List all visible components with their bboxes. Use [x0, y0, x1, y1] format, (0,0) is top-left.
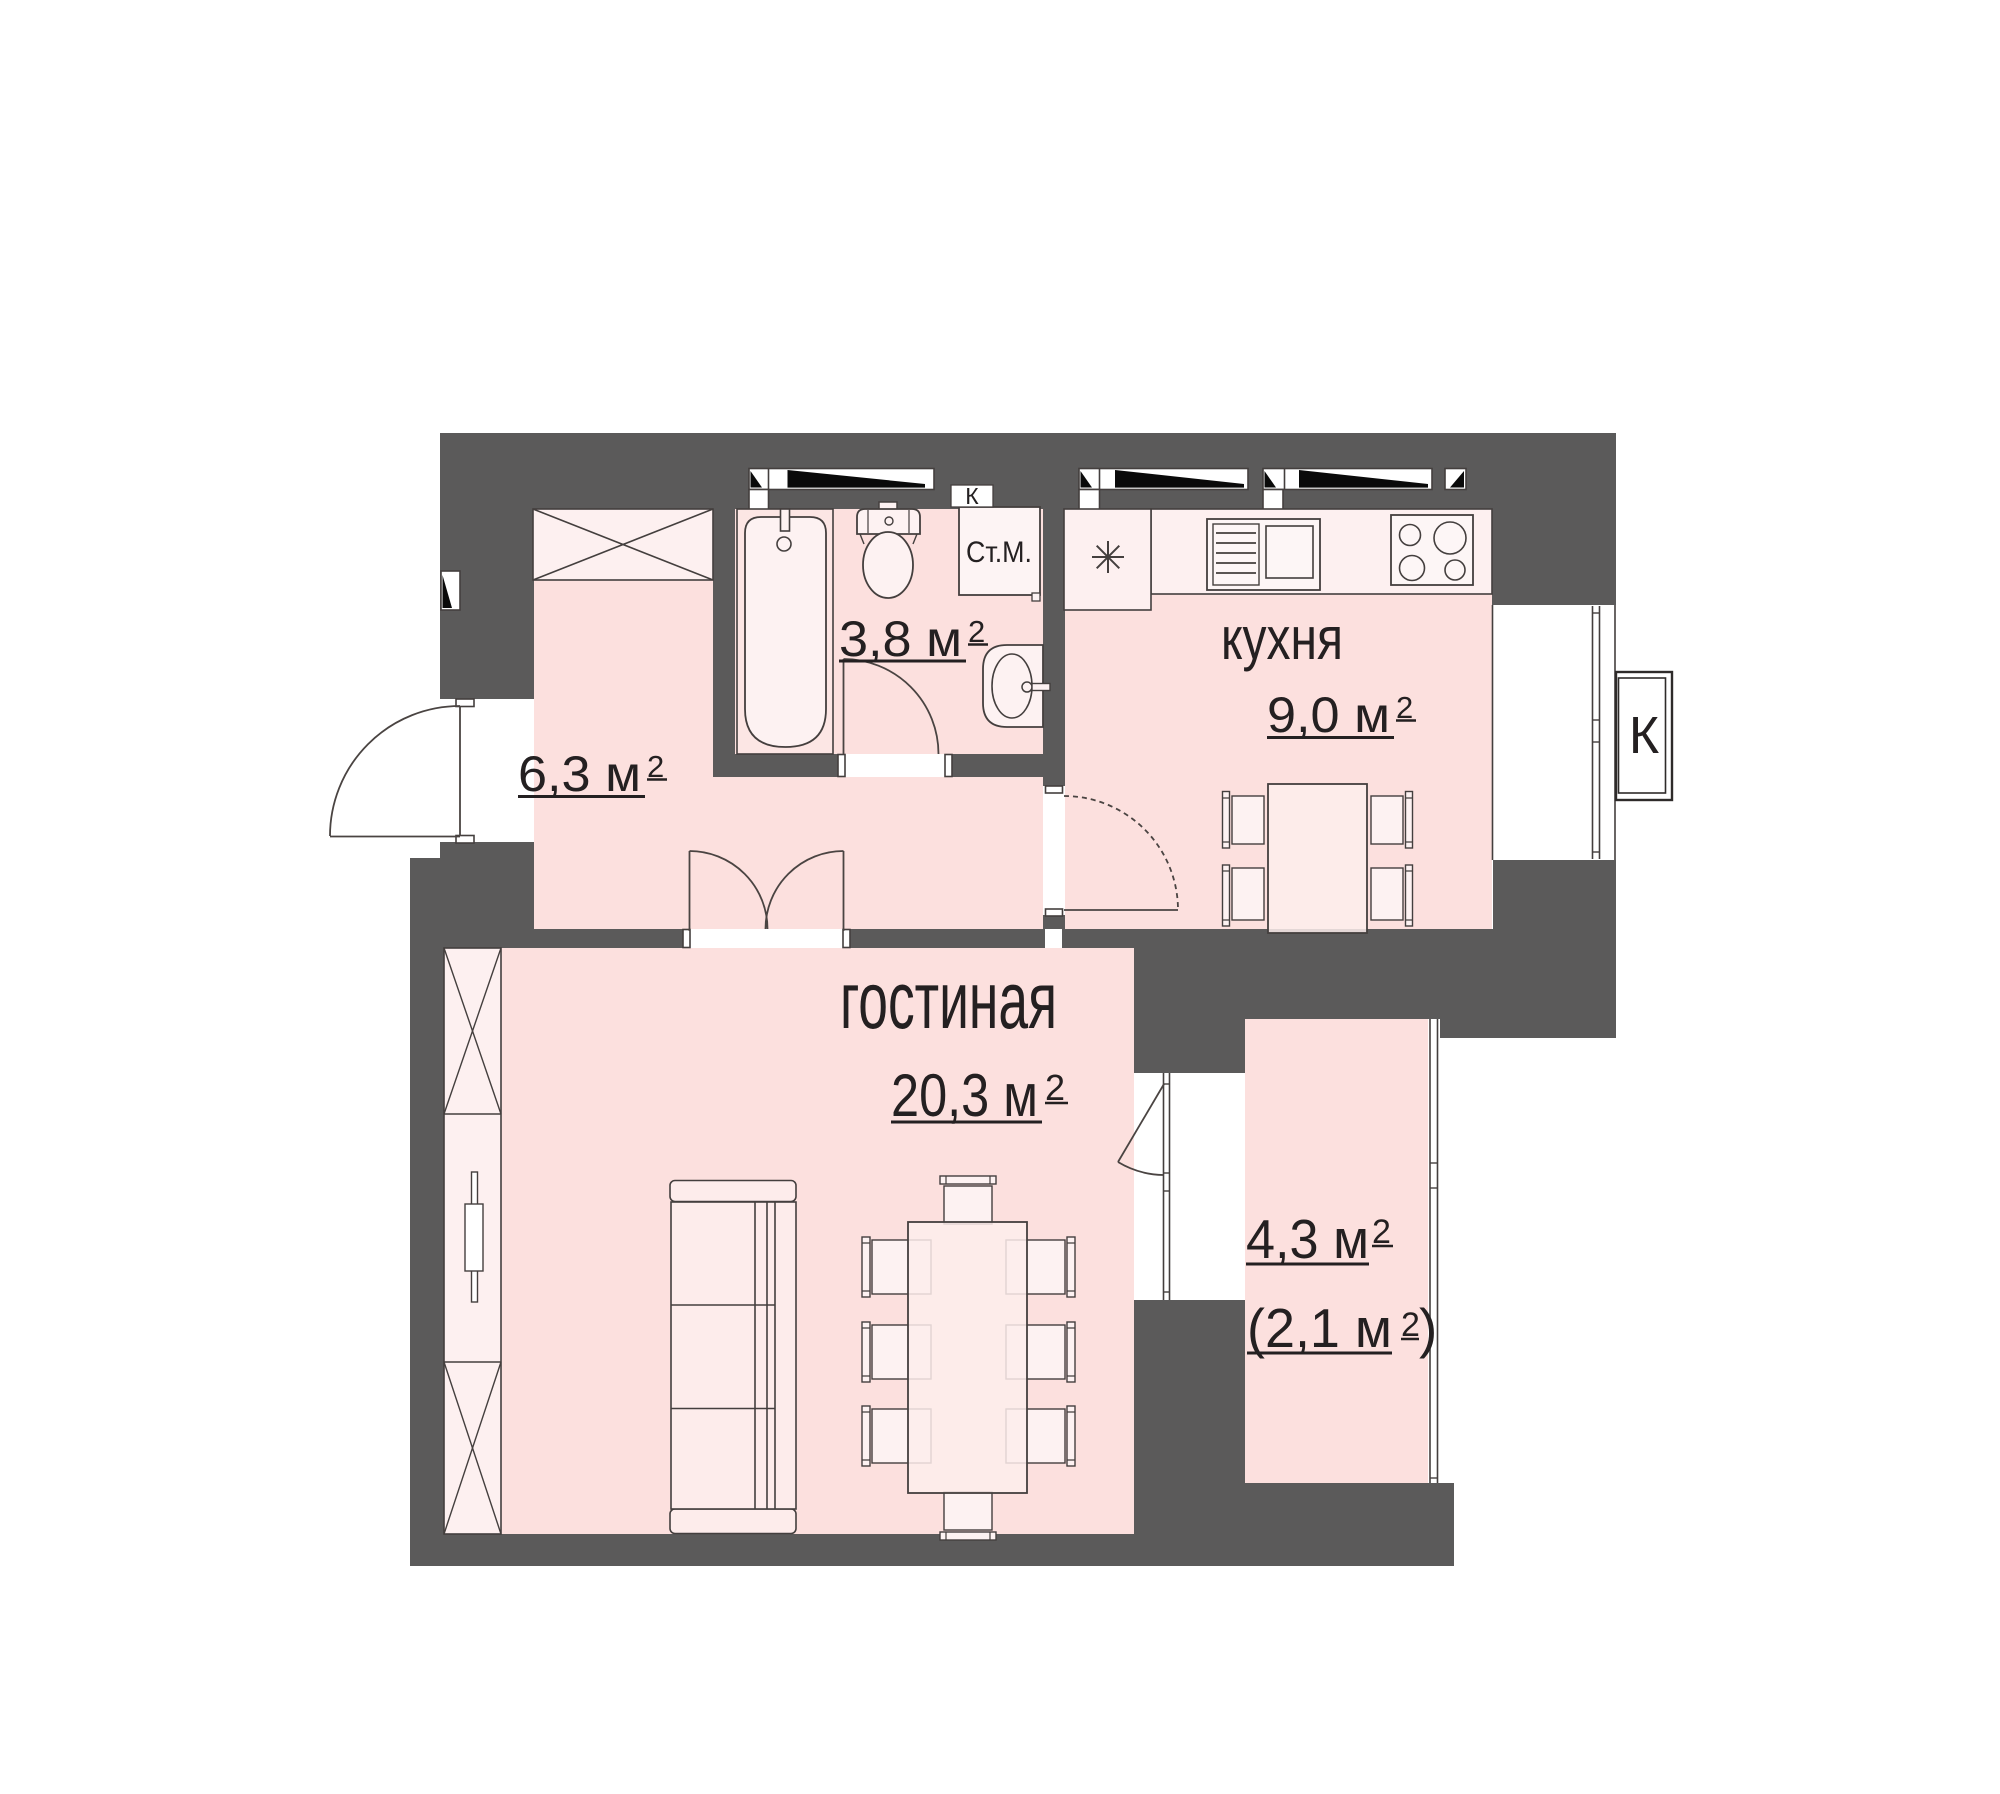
svg-text:К: К: [965, 483, 979, 509]
svg-text:9,0 м: 9,0 м: [1267, 687, 1390, 743]
svg-text:гостиная: гостиная: [840, 956, 1057, 1046]
svg-text:К: К: [1629, 707, 1659, 765]
svg-text:20,3 м: 20,3 м: [891, 1062, 1038, 1129]
svg-text:кухня: кухня: [1221, 605, 1343, 672]
svg-text:(2,1 м: (2,1 м: [1247, 1297, 1392, 1359]
svg-text:3,8 м: 3,8 м: [839, 611, 962, 667]
svg-text:6,3 м: 6,3 м: [518, 746, 641, 802]
svg-text:4,3 м: 4,3 м: [1246, 1208, 1369, 1270]
svg-text:Ст.М.: Ст.М.: [966, 536, 1032, 569]
svg-text:): ): [1419, 1297, 1437, 1359]
